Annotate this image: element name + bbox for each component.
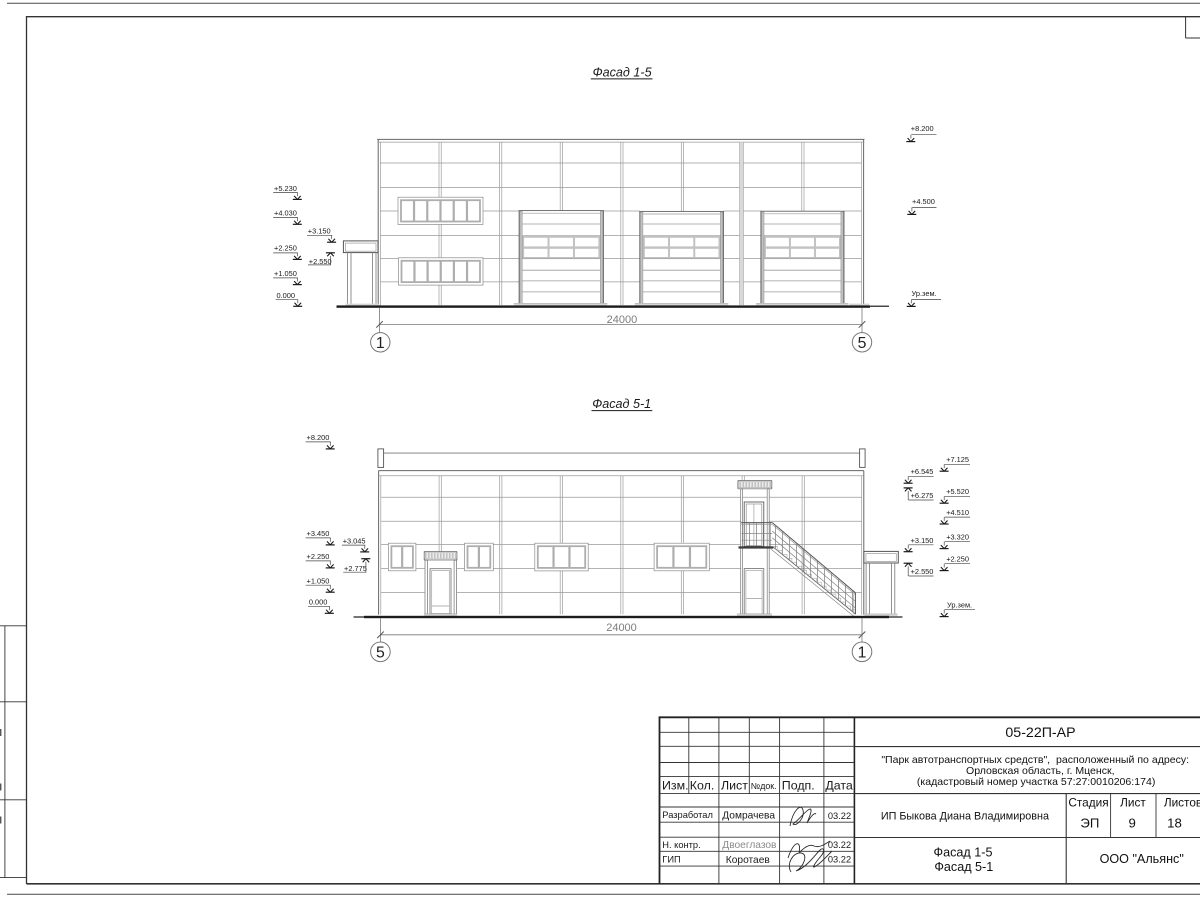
svg-text:ГИП: ГИП	[662, 855, 680, 865]
svg-text:Двоеглазов: Двоеглазов	[722, 840, 776, 851]
svg-text:(кадастровый номер участка 57:: (кадастровый номер участка 57:27:0010206…	[917, 776, 1156, 788]
svg-text:+2.550: +2.550	[911, 567, 934, 576]
svg-text:№док.: №док.	[751, 781, 777, 791]
svg-text:Домрачева: Домрачева	[722, 811, 775, 822]
svg-text:Фасад 5-1: Фасад 5-1	[934, 860, 993, 874]
svg-text:Ур.зем.: Ур.зем.	[947, 601, 972, 610]
svg-text:+2.775: +2.775	[344, 564, 367, 573]
svg-text:Н. контр.: Н. контр.	[662, 840, 700, 850]
svg-text:1: 1	[376, 335, 385, 352]
svg-text:Подп.: Подп.	[782, 779, 815, 793]
svg-text:24000: 24000	[607, 314, 638, 326]
svg-text:0.000: 0.000	[277, 291, 296, 300]
svg-text:ЭП: ЭП	[1080, 816, 1099, 831]
svg-text:+5.230: +5.230	[274, 184, 297, 193]
svg-text:0.000: 0.000	[309, 598, 328, 607]
svg-text:+3.450: +3.450	[307, 529, 330, 538]
svg-text:+4.510: +4.510	[946, 508, 969, 517]
svg-text:+6.545: +6.545	[911, 467, 934, 476]
svg-text:5: 5	[376, 645, 385, 662]
svg-text:Фасад 1-5: Фасад 1-5	[593, 66, 653, 80]
svg-text:+3.150: +3.150	[308, 227, 331, 236]
svg-text:03.22: 03.22	[828, 840, 851, 850]
svg-text:+1.050: +1.050	[307, 577, 330, 586]
svg-text:ООО "Альянс": ООО "Альянс"	[1100, 852, 1184, 866]
svg-text:Ур.зем.: Ур.зем.	[912, 289, 937, 298]
svg-text:Фасад 5-1: Фасад 5-1	[592, 397, 651, 411]
svg-text:+1.050: +1.050	[274, 269, 297, 278]
svg-text:Коротаев: Коротаев	[726, 855, 770, 866]
svg-text:+8.200: +8.200	[307, 433, 330, 442]
svg-text:+2.250: +2.250	[307, 552, 330, 561]
svg-text:+3.045: +3.045	[343, 537, 366, 546]
svg-text:+6.275: +6.275	[911, 491, 934, 500]
svg-text:03.22: 03.22	[828, 854, 851, 864]
svg-text:Лист: Лист	[1120, 796, 1146, 810]
svg-text:24000: 24000	[606, 622, 637, 634]
svg-text:Изм.: Изм.	[662, 779, 689, 793]
svg-text:+8.200: +8.200	[911, 124, 934, 133]
svg-text:5: 5	[858, 335, 867, 352]
svg-text:03.22: 03.22	[828, 811, 851, 821]
svg-text:+3.150: +3.150	[911, 536, 934, 545]
svg-text:05-22П-АР: 05-22П-АР	[1005, 725, 1075, 741]
svg-text:Разработал: Разработал	[662, 810, 713, 820]
svg-text:+4.500: +4.500	[912, 197, 935, 206]
svg-text:+3.320: +3.320	[946, 533, 969, 542]
svg-text:+4.030: +4.030	[274, 209, 297, 218]
svg-text:Кол.: Кол.	[690, 779, 715, 793]
svg-text:ИП Быкова Диана Владимировна: ИП Быкова Диана Владимировна	[881, 810, 1049, 822]
svg-text:9: 9	[1129, 816, 1136, 831]
svg-text:Фасад 1-5: Фасад 1-5	[934, 845, 993, 859]
svg-text:Дата: Дата	[825, 779, 853, 793]
svg-text:+2.250: +2.250	[274, 244, 297, 253]
svg-text:Стадия: Стадия	[1068, 796, 1108, 810]
svg-text:+2.250: +2.250	[946, 555, 969, 564]
svg-text:Листов: Листов	[1164, 796, 1200, 810]
svg-text:1: 1	[858, 645, 867, 662]
svg-text:18: 18	[1167, 816, 1182, 831]
svg-text:+5.520: +5.520	[946, 487, 969, 496]
svg-text:Лист: Лист	[721, 779, 748, 793]
svg-text:+7.125: +7.125	[946, 455, 969, 464]
